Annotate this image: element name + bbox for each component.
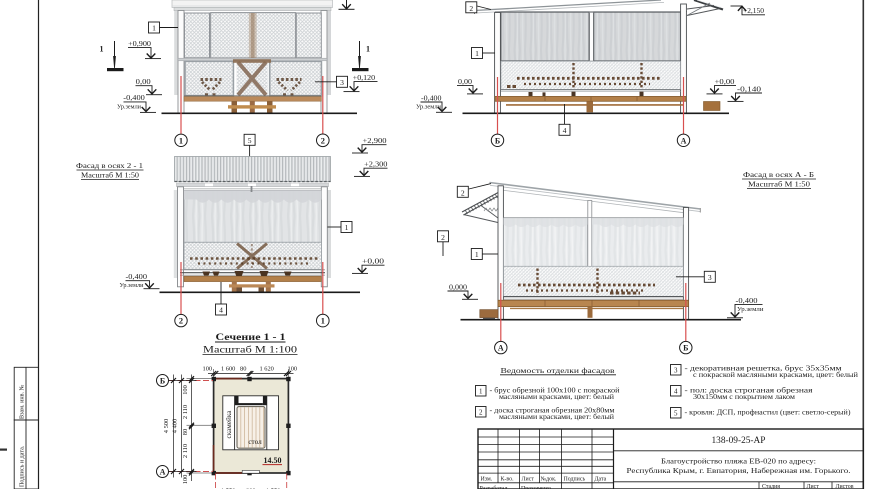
svg-text:А: А — [681, 136, 687, 145]
svg-text:2: 2 — [479, 409, 483, 417]
svg-text:2 110: 2 110 — [182, 405, 189, 419]
svg-text:+0,900: +0,900 — [128, 41, 152, 48]
svg-text:скамейка: скамейка — [225, 410, 233, 439]
svg-text:Ур.земли: Ур.земли — [416, 104, 442, 110]
svg-text:1: 1 — [475, 250, 479, 259]
svg-text:Разработал: Разработал — [480, 485, 508, 489]
svg-text:1: 1 — [475, 49, 479, 58]
svg-text:1: 1 — [100, 45, 104, 54]
svg-text:5: 5 — [248, 136, 252, 145]
svg-text:А: А — [160, 468, 166, 477]
svg-text:Ур.земли: Ур.земли — [737, 307, 764, 313]
svg-text:Б: Б — [683, 344, 688, 353]
svg-text:80: 80 — [182, 429, 189, 435]
svg-text:100: 100 — [203, 365, 213, 372]
svg-text:2: 2 — [441, 233, 445, 242]
svg-text:К-во.: К-во. — [501, 476, 515, 482]
svg-text:4 400: 4 400 — [172, 419, 179, 433]
svg-text:100: 100 — [288, 365, 298, 372]
svg-text:Масштаб М 1:50: Масштаб М 1:50 — [748, 180, 810, 189]
svg-text:Ур.земли: Ур.земли — [117, 104, 142, 110]
svg-text:Ур.земли: Ур.земли — [120, 283, 145, 289]
svg-text:масляными красками, цвет: белы: масляными красками, цвет: белый — [499, 413, 614, 421]
svg-text:1: 1 — [366, 45, 370, 54]
svg-text:100: 100 — [182, 385, 189, 395]
svg-text:Масштаб М 1:100: Масштаб М 1:100 — [203, 345, 297, 356]
svg-text:+0,00: +0,00 — [715, 79, 736, 86]
svg-text:1: 1 — [479, 388, 483, 396]
svg-text:0,00: 0,00 — [136, 79, 152, 86]
svg-text:1 600: 1 600 — [221, 365, 235, 372]
svg-text:3: 3 — [708, 273, 712, 282]
svg-text:0,00: 0,00 — [458, 79, 473, 86]
svg-text:14.50: 14.50 — [264, 456, 282, 465]
svg-text:Благоустройство пляжа ЕВ-020 п: Благоустройство пляжа ЕВ-020 по адресу: — [661, 457, 816, 466]
svg-text:Фасад в осях 2 - 1: Фасад в осях 2 - 1 — [76, 161, 143, 170]
svg-text:Б: Б — [160, 377, 165, 386]
svg-text:5: 5 — [674, 410, 678, 418]
svg-text:Изм.: Изм. — [481, 476, 493, 482]
svg-text:2: 2 — [179, 317, 183, 326]
svg-text:100: 100 — [182, 475, 189, 485]
svg-text:Листов: Листов — [836, 484, 854, 489]
svg-text:2: 2 — [461, 188, 465, 197]
svg-text:Подпись и дата.: Подпись и дата. — [20, 445, 26, 487]
svg-text:с покраской масляными краскам: с покраской масляными красками, цвет: бе… — [693, 371, 858, 379]
svg-text:+2,900: +2,900 — [363, 138, 388, 145]
svg-text:Фасад в осях А - Б: Фасад в осях А - Б — [743, 170, 814, 179]
svg-text:Масштаб М 1:50: Масштаб М 1:50 — [81, 171, 139, 180]
svg-text:-0,400: -0,400 — [123, 95, 145, 102]
svg-text:Подпись: Подпись — [564, 476, 586, 482]
svg-text:Ведомость отделки фасадов: Ведомость отделки фасадов — [501, 366, 616, 375]
svg-text:2 110: 2 110 — [182, 444, 189, 458]
svg-text:2: 2 — [321, 136, 325, 145]
svg-text:1: 1 — [345, 223, 349, 232]
svg-text:А: А — [498, 344, 504, 353]
svg-text:1: 1 — [321, 317, 325, 326]
svg-text:0,000: 0,000 — [449, 284, 468, 291]
svg-text:-0,400: -0,400 — [736, 298, 759, 305]
svg-text:Лист: Лист — [522, 476, 535, 482]
svg-text:Лист: Лист — [807, 484, 820, 489]
svg-text:80: 80 — [240, 365, 246, 372]
svg-text:138-09-25-АР: 138-09-25-АР — [712, 435, 766, 445]
svg-text:-0,400: -0,400 — [126, 274, 148, 281]
svg-text:Республика Крым, г. Евпатори: Республика Крым, г. Евпатория, Набережна… — [627, 466, 851, 475]
svg-text:стол: стол — [248, 438, 262, 446]
svg-text:+2,150: +2,150 — [743, 8, 765, 15]
svg-text:4 500: 4 500 — [163, 419, 170, 433]
svg-text:Дата: Дата — [595, 476, 607, 482]
svg-text:1 620: 1 620 — [260, 365, 274, 372]
svg-text:Стадия: Стадия — [762, 484, 780, 489]
svg-text:30х150мм с покрытием лаком: 30х150мм с покрытием лаком — [693, 393, 796, 401]
svg-text:4: 4 — [674, 388, 678, 396]
svg-text:- кровля: ДСП, профнастил (ц: - кровля: ДСП, профнастил (цвет: светло-… — [685, 408, 852, 416]
svg-text:Б: Б — [495, 136, 500, 145]
svg-text:1: 1 — [152, 24, 156, 33]
svg-text:2: 2 — [469, 4, 473, 13]
svg-text:+0,00: +0,00 — [362, 258, 385, 265]
svg-text:4: 4 — [219, 306, 223, 315]
svg-text:4: 4 — [563, 126, 567, 135]
svg-text:масляными красками, цвет: белы: масляными красками, цвет: белый — [499, 393, 614, 401]
svg-text:-0,140: -0,140 — [737, 86, 762, 93]
svg-text:+0,120: +0,120 — [353, 75, 376, 82]
svg-text:Взам. инв. №: Взам. инв. № — [20, 384, 26, 419]
svg-text:3: 3 — [340, 78, 344, 87]
svg-text:-0,400: -0,400 — [421, 95, 442, 102]
svg-text:1: 1 — [179, 136, 183, 145]
svg-text:+2,300: +2,300 — [364, 161, 388, 168]
svg-text:3: 3 — [674, 367, 678, 375]
svg-text:№док.: №док. — [541, 476, 557, 482]
